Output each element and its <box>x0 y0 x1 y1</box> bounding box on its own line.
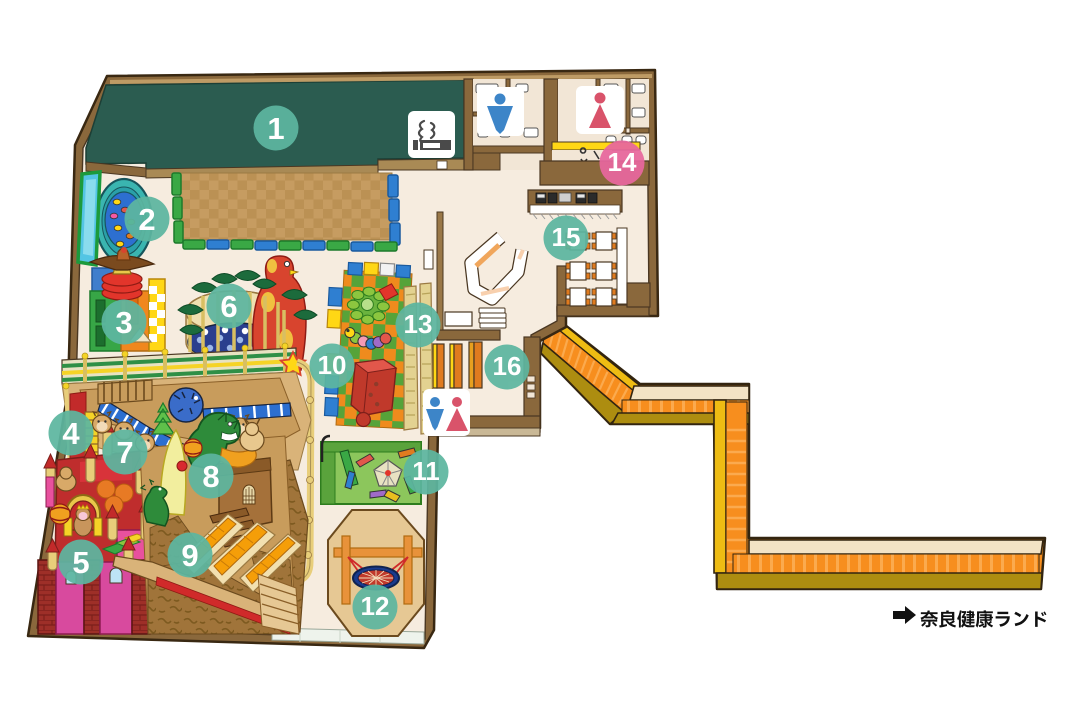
svg-text:9: 9 <box>181 538 198 573</box>
svg-text:6: 6 <box>220 289 237 324</box>
svg-text:3: 3 <box>115 305 132 340</box>
svg-text:4: 4 <box>62 416 80 451</box>
svg-text:13: 13 <box>404 309 433 339</box>
svg-text:12: 12 <box>361 591 390 621</box>
svg-text:2: 2 <box>138 202 155 237</box>
svg-text:15: 15 <box>552 222 581 252</box>
svg-text:5: 5 <box>72 545 89 580</box>
svg-text:7: 7 <box>116 435 133 470</box>
svg-text:16: 16 <box>493 351 522 381</box>
svg-text:11: 11 <box>412 456 440 486</box>
svg-text:1: 1 <box>267 111 284 146</box>
svg-text:10: 10 <box>318 350 347 380</box>
svg-text:14: 14 <box>608 147 637 177</box>
svg-text:8: 8 <box>202 459 219 494</box>
